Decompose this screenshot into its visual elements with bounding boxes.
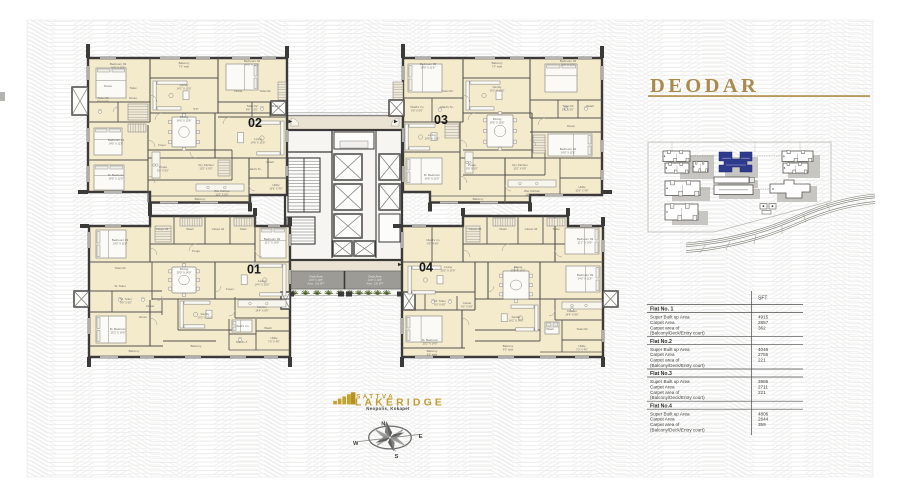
- svg-text:4046: 4046: [758, 347, 769, 352]
- svg-text:5'0": 5'0": [194, 107, 199, 111]
- svg-text:Toilet 02: Toilet 02: [246, 104, 258, 108]
- svg-text:7'0" wide: 7'0" wide: [492, 64, 503, 68]
- svg-text:Super Built up Area: Super Built up Area: [650, 379, 690, 384]
- svg-text:Closet 03: Closet 03: [469, 227, 482, 231]
- svg-text:Living: Living: [258, 279, 266, 283]
- svg-text:Foyer: Foyer: [226, 287, 234, 291]
- svg-text:Foyer: Foyer: [158, 143, 166, 147]
- svg-text:Balcony: Balcony: [473, 197, 484, 201]
- svg-text:01: 01: [247, 263, 261, 277]
- svg-text:M. Bedroom: M. Bedroom: [110, 327, 127, 331]
- svg-text:(Balcony/Deck/Entry court): (Balcony/Deck/Entry court): [650, 395, 705, 400]
- svg-text:Family: Family: [201, 312, 210, 316]
- svg-text:362: 362: [758, 325, 766, 330]
- svg-text:10'6" X 4'0": 10'6" X 4'0": [269, 186, 282, 190]
- svg-text:14'0" X 11'6": 14'0" X 11'6": [421, 65, 436, 69]
- svg-text:Balcony: Balcony: [129, 349, 140, 353]
- svg-text:Bedroom 04: Bedroom 04: [560, 147, 577, 151]
- svg-text:7'0" X 4'0": 7'0" X 4'0": [268, 339, 280, 343]
- svg-text:04: 04: [419, 261, 433, 275]
- svg-text:Dress: Dress: [139, 315, 147, 319]
- svg-text:9'0" X 6'6": 9'0" X 6'6": [427, 241, 439, 245]
- svg-text:9'0" X 6'0": 9'0" X 6'0": [120, 300, 132, 304]
- svg-text:Pooja: Pooja: [192, 249, 200, 253]
- svg-text:14'0" X 11'6": 14'0" X 11'6": [578, 276, 593, 280]
- svg-text:Dining: Dining: [180, 115, 189, 119]
- svg-text:7'0" X 4'0": 7'0" X 4'0": [576, 347, 588, 351]
- svg-text:Dining: Dining: [493, 117, 502, 121]
- svg-text:14'6" X 12'0": 14'6" X 12'0": [425, 176, 440, 180]
- svg-text:9'0" wide: 9'0" wide: [427, 352, 438, 356]
- svg-text:Super Built up Area: Super Built up Area: [650, 411, 690, 416]
- svg-text:Wet Kitchen: Wet Kitchen: [214, 189, 230, 193]
- svg-text:11'0" X 8'0": 11'0" X 8'0": [525, 192, 538, 196]
- svg-text:Closet 02: Closet 02: [525, 227, 538, 231]
- svg-text:2755: 2755: [758, 352, 769, 357]
- svg-text:Carpet area of: Carpet area of: [650, 358, 680, 363]
- svg-text:14'2" X 10'0": 14'2" X 10'0": [490, 88, 505, 92]
- svg-text:Closet 02: Closet 02: [212, 227, 225, 231]
- svg-text:S: S: [394, 454, 398, 460]
- svg-text:Toilet 03: Toilet 03: [97, 96, 109, 100]
- svg-text:Utility: Utility: [270, 336, 278, 340]
- svg-text:Utility: Utility: [272, 183, 280, 187]
- svg-text:DEODAR: DEODAR: [650, 75, 759, 97]
- svg-text:9'0" X 6'0": 9'0" X 6'0": [434, 302, 446, 306]
- svg-text:Bedroom 03: Bedroom 03: [110, 62, 127, 66]
- svg-text:Living: Living: [444, 265, 452, 269]
- svg-text:Dry Kitchen: Dry Kitchen: [512, 163, 528, 167]
- svg-text:M. Bedroom: M. Bedroom: [108, 173, 125, 177]
- svg-text:Maid's T.: Maid's T.: [236, 340, 248, 344]
- svg-text:11'0" X 8'0": 11'0" X 8'0": [199, 166, 212, 170]
- svg-text:Neopolis, Kokapet: Neopolis, Kokapet: [366, 406, 410, 411]
- svg-text:W. Toilet: W. Toilet: [114, 284, 125, 288]
- svg-text:Bedroom 03: Bedroom 03: [577, 237, 594, 241]
- svg-text:20'2" X 14'0": 20'2" X 14'0": [423, 341, 438, 345]
- svg-text:Toilet: Toilet: [552, 227, 559, 231]
- svg-text:14'0" X 12'0": 14'0" X 12'0": [245, 62, 260, 66]
- svg-text:9'2" X 6'6": 9'2" X 6'6": [461, 304, 473, 308]
- svg-text:14'6" X 15'6": 14'6" X 15'6": [177, 118, 192, 122]
- svg-text:221: 221: [758, 358, 766, 363]
- svg-text:14'2" X 14'0": 14'2" X 14'0": [198, 315, 213, 319]
- svg-text:14'4" X 8'0": 14'4" X 8'0": [565, 312, 578, 316]
- svg-text:Flat No. 1: Flat No. 1: [650, 307, 673, 313]
- svg-text:M. Toilet: M. Toilet: [120, 297, 131, 301]
- svg-text:Family: Family: [493, 85, 502, 89]
- svg-text:Closet 03: Closet 03: [156, 227, 169, 231]
- svg-text:Balcony: Balcony: [503, 344, 514, 348]
- svg-text:Maid's To.: Maid's To.: [248, 167, 262, 171]
- svg-text:M. Bedroom: M. Bedroom: [422, 338, 439, 342]
- svg-text:02: 02: [248, 116, 262, 130]
- svg-text:Family: Family: [512, 315, 521, 319]
- svg-text:Carpet Area: Carpet Area: [650, 385, 675, 390]
- svg-text:9'0" X 6'6": 9'0" X 6'6": [411, 108, 423, 112]
- svg-text:(Balcony/Deck/Entry court): (Balcony/Deck/Entry court): [650, 331, 705, 336]
- svg-text:Toilet 03: Toilet 03: [114, 266, 126, 270]
- svg-text:Kitchen: Kitchen: [257, 305, 267, 309]
- svg-text:5'0" X 5'0": 5'0" X 5'0": [466, 166, 478, 170]
- svg-text:14'6" X 12'0": 14'6" X 12'0": [109, 176, 124, 180]
- svg-text:Flat No.2: Flat No.2: [650, 339, 672, 345]
- svg-text:7'0" wide: 7'0" wide: [179, 64, 190, 68]
- svg-text:10'6" X 4'0": 10'6" X 4'0": [575, 188, 588, 192]
- svg-text:03: 03: [434, 113, 448, 127]
- svg-text:Pooja: Pooja: [159, 165, 167, 169]
- svg-text:E: E: [419, 434, 423, 440]
- svg-text:Flat No.3: Flat No.3: [650, 371, 672, 377]
- svg-text:8'6" X 5'0": 8'6" X 5'0": [562, 107, 574, 111]
- svg-text:14'0" X 11'6": 14'0" X 11'6": [109, 141, 124, 145]
- svg-text:Maid's rm: Maid's rm: [411, 105, 424, 109]
- svg-text:Balcony: Balcony: [492, 61, 503, 65]
- svg-text:20'0" X 14'0": 20'0" X 14'0": [177, 270, 192, 274]
- svg-text:8'0" X 5'0": 8'0" X 5'0": [97, 99, 109, 103]
- svg-text:Wash: Wash: [266, 160, 274, 164]
- svg-text:Dress: Dress: [104, 84, 112, 88]
- svg-text:Area : 135 SFT: Area : 135 SFT: [367, 282, 384, 285]
- svg-text:Wet Kitchen: Wet Kitchen: [524, 189, 540, 193]
- svg-text:11'0" X 8'0": 11'0" X 8'0": [513, 166, 526, 170]
- svg-text:Dining: Dining: [514, 265, 523, 269]
- svg-text:14'6" X 15'6": 14'6" X 15'6": [425, 136, 440, 140]
- svg-text:Deck Area: Deck Area: [369, 275, 382, 279]
- svg-text:SFT: SFT: [758, 296, 767, 302]
- svg-text:Flat No.4: Flat No.4: [650, 403, 672, 409]
- svg-text:Toilet 03: Toilet 03: [441, 89, 453, 93]
- svg-text:Utility: Utility: [578, 185, 586, 189]
- svg-text:359: 359: [758, 422, 766, 427]
- svg-text:Closet: Closet: [234, 89, 243, 93]
- svg-text:Balcony: Balcony: [191, 344, 202, 348]
- svg-text:Bedroom 02: Bedroom 02: [560, 59, 577, 63]
- svg-text:Bedroom 02: Bedroom 02: [264, 237, 281, 241]
- svg-text:Balcony: Balcony: [179, 61, 190, 65]
- svg-text:Deck Area: Deck Area: [310, 275, 323, 279]
- svg-text:11'2" X 14'0": 11'2" X 14'0": [265, 240, 280, 244]
- svg-text:14'0" X 11'6": 14'0" X 11'6": [113, 241, 128, 245]
- svg-text:M. Bedroom: M. Bedroom: [424, 173, 441, 177]
- svg-text:Dining: Dining: [180, 267, 189, 271]
- svg-text:2711: 2711: [758, 385, 768, 390]
- svg-text:Super Built up Area: Super Built up Area: [650, 347, 690, 352]
- svg-text:Balcony: Balcony: [427, 349, 438, 353]
- svg-text:3985: 3985: [758, 379, 769, 384]
- svg-text:Bedroom 04: Bedroom 04: [108, 138, 125, 142]
- svg-text:Living: Living: [428, 133, 436, 137]
- svg-text:8'6" X 5'0": 8'6" X 5'0": [246, 107, 258, 111]
- svg-text:9'0" wide: 9'0" wide: [503, 347, 514, 351]
- svg-text:Dress: Dress: [129, 96, 137, 100]
- svg-text:14'0" X 11'6": 14'0" X 11'6": [111, 65, 126, 69]
- svg-text:2857: 2857: [758, 320, 769, 325]
- svg-text:Bedroom 03: Bedroom 03: [420, 62, 437, 66]
- svg-text:Area : 135 SFT: Area : 135 SFT: [308, 282, 325, 285]
- svg-text:4806: 4806: [758, 411, 769, 416]
- svg-text:Toilet 02: Toilet 02: [562, 104, 574, 108]
- svg-text:14'0" X 11'6": 14'0" X 11'6": [561, 150, 576, 154]
- svg-text:Bedroom 03: Bedroom 03: [112, 238, 129, 242]
- svg-text:Kitchen: Kitchen: [567, 309, 577, 313]
- svg-text:Carpet area of: Carpet area of: [650, 325, 680, 330]
- svg-text:Wash: Wash: [546, 327, 554, 331]
- svg-text:20'2" X 14'0": 20'2" X 14'0": [441, 268, 456, 272]
- svg-text:Dress: Dress: [567, 124, 575, 128]
- svg-text:14'6" X 15'6": 14'6" X 15'6": [251, 140, 266, 144]
- svg-text:2644: 2644: [758, 417, 769, 422]
- svg-text:Carpet area of: Carpet area of: [650, 422, 680, 427]
- svg-text:W: W: [353, 441, 359, 447]
- svg-text:Toilet: Toilet: [129, 86, 136, 90]
- svg-text:14'4" X 8'0": 14'4" X 8'0": [255, 308, 268, 312]
- svg-text:20'0" X 14'0": 20'0" X 14'0": [511, 268, 526, 272]
- svg-text:Toilet 04: Toilet 04: [576, 327, 588, 331]
- svg-text:Closet: Closet: [463, 301, 472, 305]
- svg-text:Carpet Area: Carpet Area: [650, 417, 675, 422]
- svg-text:14'2" X 10'0": 14'2" X 10'0": [177, 86, 192, 90]
- svg-text:(Balcony/Deck/Entry court): (Balcony/Deck/Entry court): [650, 363, 705, 368]
- svg-text:11'2" X 14'0": 11'2" X 14'0": [578, 240, 593, 244]
- svg-text:Family: Family: [180, 83, 189, 87]
- svg-text:Maid's rm: Maid's rm: [236, 324, 249, 328]
- svg-text:5'0" X 5'0": 5'0" X 5'0": [157, 168, 169, 172]
- svg-text:Pooja: Pooja: [468, 163, 476, 167]
- svg-text:Living: Living: [254, 137, 262, 141]
- svg-text:Carpet Area: Carpet Area: [650, 320, 675, 325]
- svg-text:Wash: Wash: [186, 227, 194, 231]
- svg-text:Maid's To.: Maid's To.: [440, 105, 454, 109]
- svg-text:Toilet 02: Toilet 02: [259, 89, 271, 93]
- svg-text:Maid's: Maid's: [272, 104, 281, 108]
- svg-text:14'4" X 20'0": 14'4" X 20'0": [255, 282, 270, 286]
- svg-text:221: 221: [758, 390, 766, 395]
- svg-text:14'2" X 14'0": 14'2" X 14'0": [509, 318, 524, 322]
- svg-text:14'6" X 15'6": 14'6" X 15'6": [490, 120, 505, 124]
- svg-text:Maid's rm: Maid's rm: [427, 238, 440, 242]
- svg-text:11'0" X 8'0": 11'0" X 8'0": [215, 192, 228, 196]
- svg-text:Super Built up Area: Super Built up Area: [650, 315, 690, 320]
- svg-text:Dry Kitchen: Dry Kitchen: [198, 163, 214, 167]
- svg-text:Bedroom 04: Bedroom 04: [577, 273, 594, 277]
- svg-text:Toilet: Toilet: [239, 227, 246, 231]
- svg-text:Balcony: Balcony: [195, 197, 206, 201]
- svg-text:Carpet area of: Carpet area of: [650, 390, 680, 395]
- svg-text:Closet: Closet: [146, 304, 155, 308]
- svg-text:Utility: Utility: [578, 344, 586, 348]
- svg-text:N: N: [381, 421, 385, 427]
- svg-text:20'2" X 14'0": 20'2" X 14'0": [111, 330, 126, 334]
- svg-text:Wash: Wash: [499, 227, 507, 231]
- svg-text:Bedroom 02: Bedroom 02: [244, 59, 261, 63]
- svg-text:Wash: Wash: [264, 326, 272, 330]
- svg-text:Carpet Area: Carpet Area: [650, 352, 675, 357]
- svg-text:(Balcony/Deck/Entry court): (Balcony/Deck/Entry court): [650, 427, 705, 432]
- svg-text:Wash: Wash: [586, 104, 594, 108]
- svg-text:14'0" X 12'0": 14'0" X 12'0": [561, 62, 576, 66]
- svg-text:4915: 4915: [758, 315, 769, 320]
- svg-text:M. Toilet: M. Toilet: [434, 299, 445, 303]
